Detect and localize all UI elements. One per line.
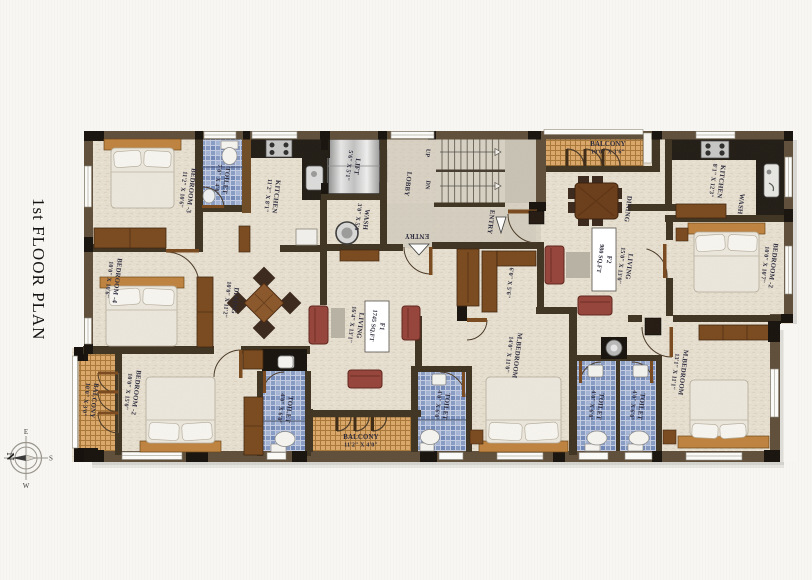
svg-text:BALCONY: BALCONY	[590, 141, 625, 148]
svg-text:DN: DN	[423, 180, 430, 190]
svg-text:W: W	[23, 482, 30, 490]
svg-text:S: S	[49, 455, 53, 463]
svg-text:ENTRY: ENTRY	[405, 232, 430, 239]
svg-text:10'0" X 3'6": 10'0" X 3'6"	[591, 150, 625, 156]
svg-text:BALCONY: BALCONY	[343, 434, 378, 441]
svg-text:UP: UP	[424, 148, 431, 157]
svg-text:E: E	[24, 428, 28, 436]
svg-text:1st FLOOR PLAN: 1st FLOOR PLAN	[29, 198, 48, 340]
svg-text:11'2" X 4'0": 11'2" X 4'0"	[344, 443, 378, 449]
svg-text:N: N	[4, 453, 16, 461]
